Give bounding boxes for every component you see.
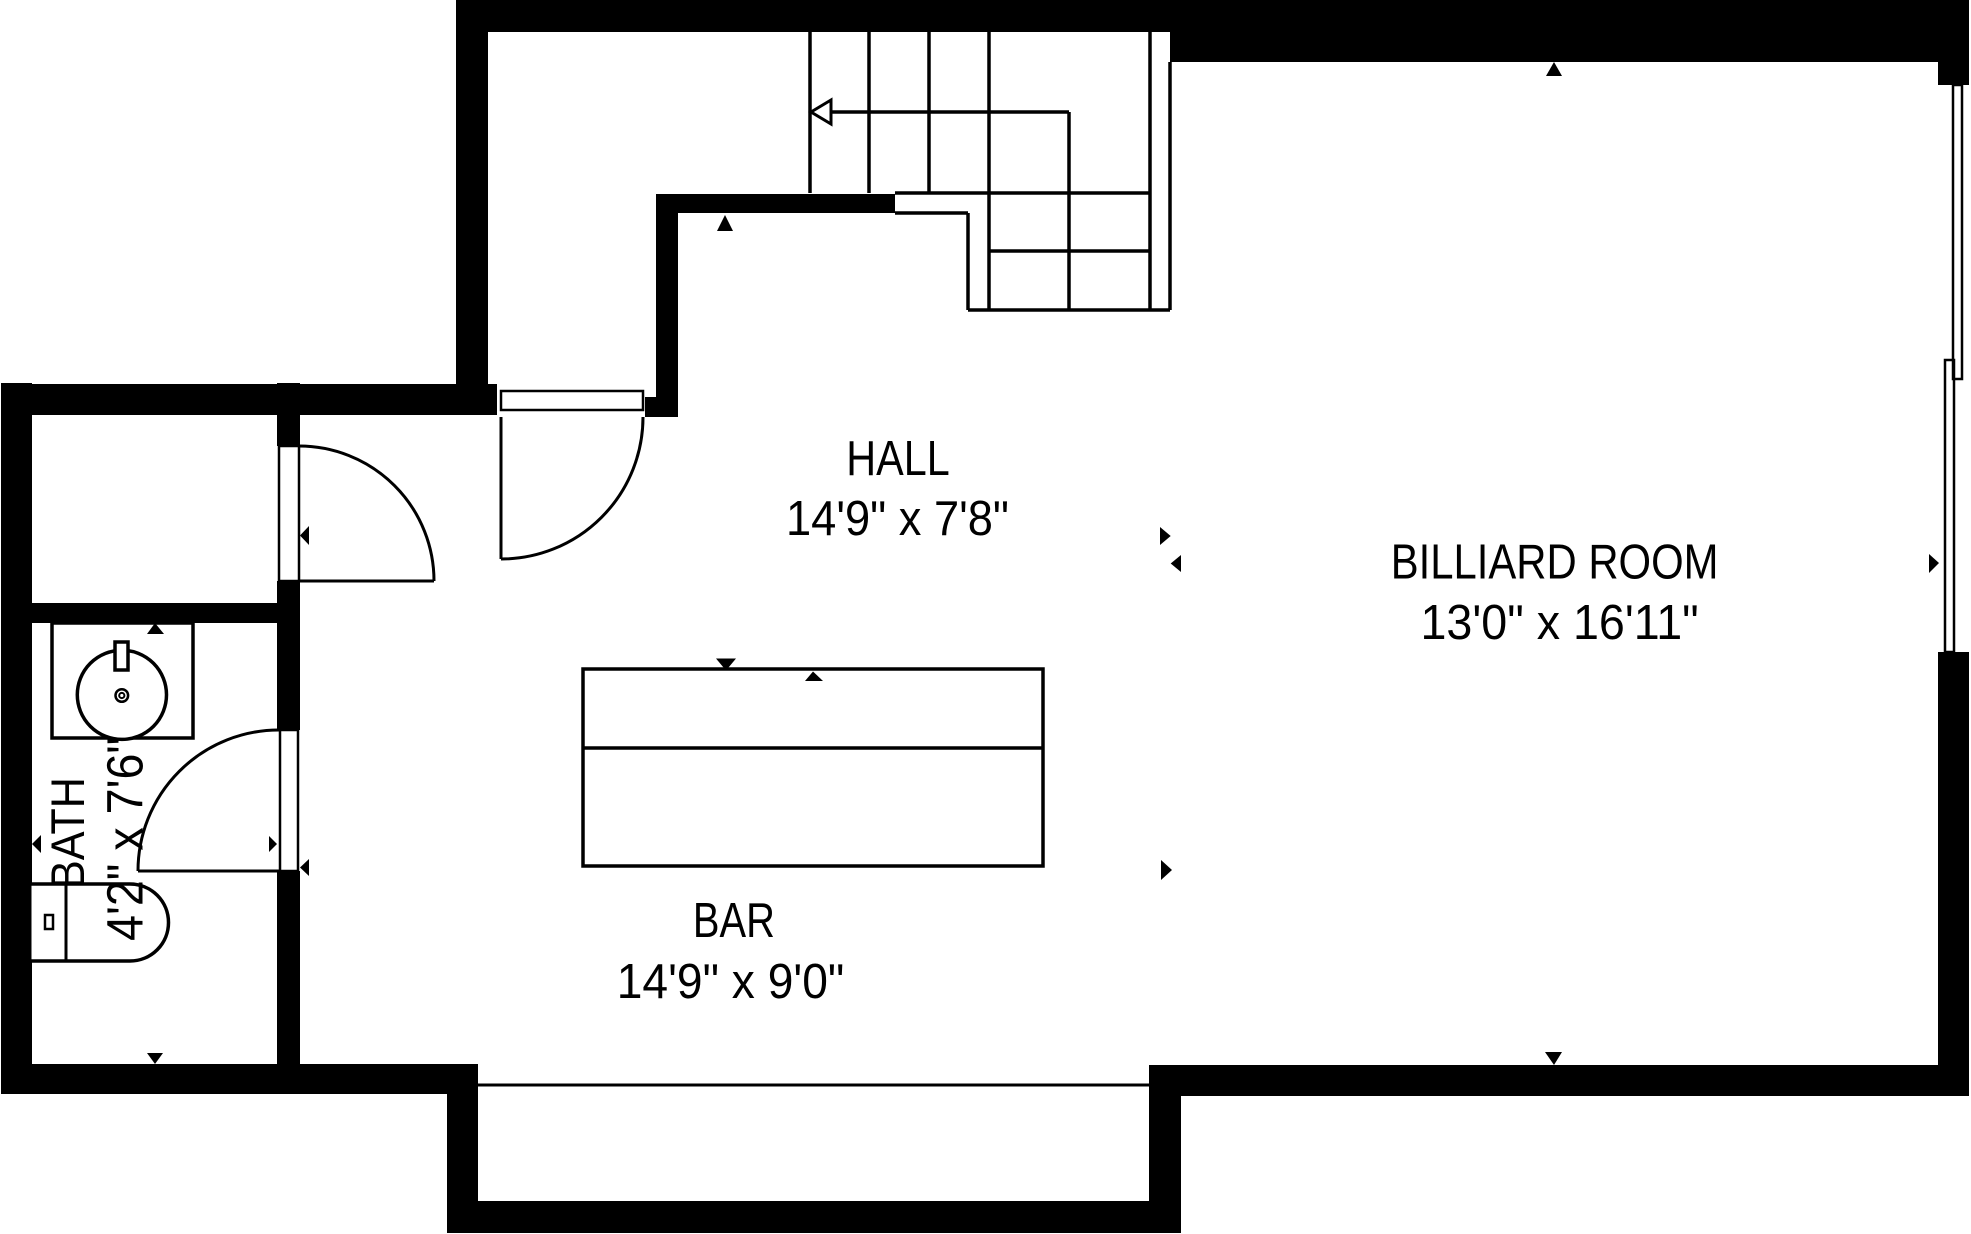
- svg-text:HALL: HALL: [846, 432, 950, 486]
- svg-text:BATH: BATH: [41, 777, 94, 889]
- svg-text:14'9" x 7'8": 14'9" x 7'8": [786, 492, 1009, 546]
- svg-text:14'9" x 9'0": 14'9" x 9'0": [617, 955, 845, 1009]
- svg-text:4'2" x 7'6": 4'2" x 7'6": [97, 737, 154, 941]
- svg-text:BILLIARD ROOM: BILLIARD ROOM: [1391, 535, 1719, 589]
- svg-text:BAR: BAR: [693, 894, 775, 948]
- svg-text:13'0" x 16'11": 13'0" x 16'11": [1421, 596, 1699, 650]
